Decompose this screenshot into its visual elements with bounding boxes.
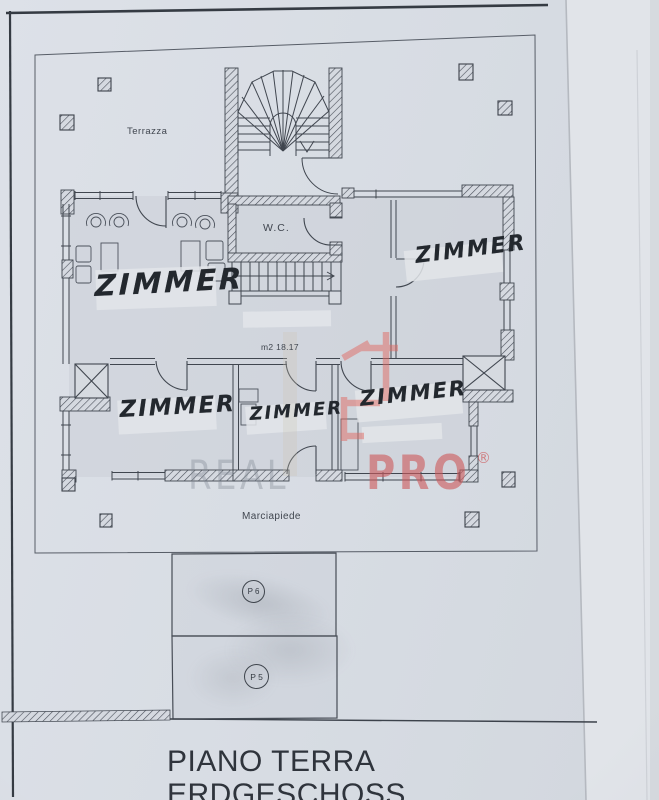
wc-label: W.C. xyxy=(263,223,290,234)
sidewalk-label: Marciapiede xyxy=(242,512,301,522)
parking-spot-p6: P 6 xyxy=(242,580,265,603)
room-label-bottom-left: ZIMMER xyxy=(119,393,236,422)
scanned-floor-plan-photo: REAL PRO ® Terrazza W.C. m2 18.17 Marcia… xyxy=(0,0,659,800)
registered-trademark-icon: ® xyxy=(476,451,491,466)
parking-spaces xyxy=(2,553,597,722)
area-note-label: m2 18.17 xyxy=(261,343,299,352)
room-label-living: ZIMMER xyxy=(94,264,244,301)
curb-hatch-strip xyxy=(2,710,170,722)
page-edge xyxy=(566,0,659,800)
terrace-label: Terrazza xyxy=(127,127,167,137)
parking-spot-p5-label: P 5 xyxy=(250,672,263,682)
parking-spot-p6-label: P 6 xyxy=(248,587,260,596)
entrance-door-arc xyxy=(302,158,338,194)
watermark-text-red: PRO xyxy=(366,450,470,497)
plan-title-german: ERDGESCHOSS xyxy=(167,780,406,800)
parking-spot-p5: P 5 xyxy=(244,664,269,689)
watermark-text-gray: REAL xyxy=(188,456,289,496)
plan-title-italian: PIANO TERRA xyxy=(167,747,375,777)
exterior-staircase xyxy=(238,70,338,194)
